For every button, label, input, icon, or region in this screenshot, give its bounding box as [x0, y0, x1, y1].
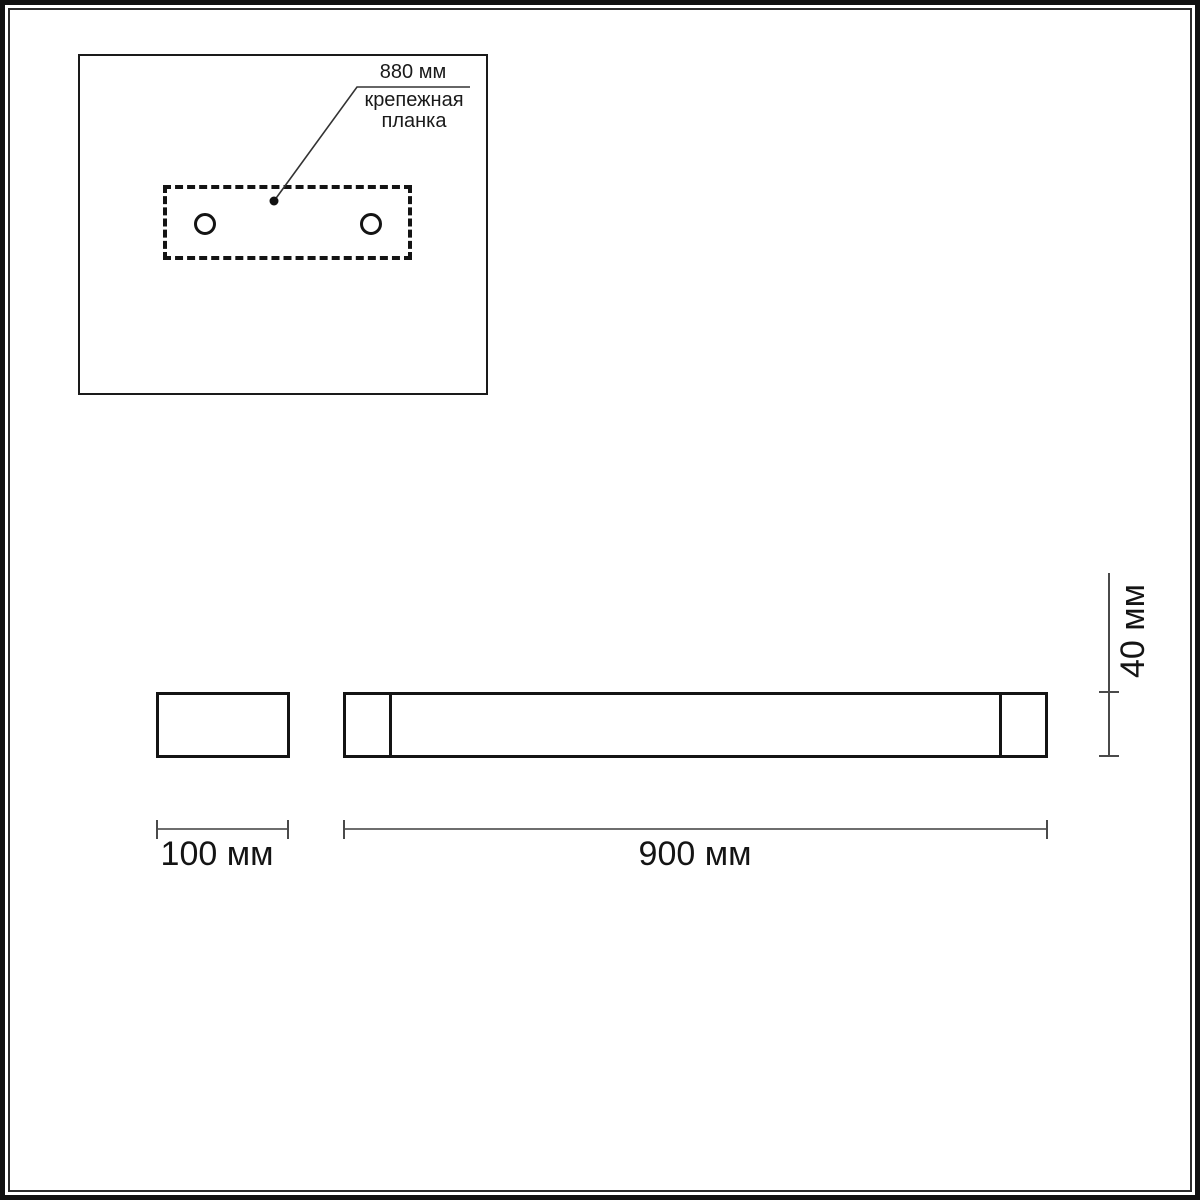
fixture-side-view — [156, 692, 290, 758]
height-label: 40 мм — [1115, 571, 1151, 691]
fixture-front-view — [343, 692, 1048, 758]
technical-drawing-canvas: 880 мм крепежная планка 100 мм 900 мм 40… — [0, 0, 1200, 1200]
mounting-plate-label: крепежная планка — [339, 90, 489, 131]
dimension-tick — [1046, 820, 1048, 839]
front-width-label: 900 мм — [625, 835, 765, 874]
end-cap-line-left — [389, 695, 392, 755]
dimension-line-900 — [343, 828, 1048, 830]
end-cap-line-right — [999, 695, 1002, 755]
dimension-tick — [343, 820, 345, 839]
dimension-tick — [1099, 755, 1119, 757]
mounting-distance-label: 880 мм — [352, 61, 474, 84]
dimension-tick — [1099, 691, 1119, 693]
dimension-tick — [287, 820, 289, 839]
dimension-line-40 — [1108, 573, 1110, 757]
dimension-line-100 — [156, 828, 289, 830]
mounting-hole-right — [360, 213, 382, 235]
mounting-hole-left — [194, 213, 216, 235]
side-width-label: 100 мм — [147, 835, 287, 874]
